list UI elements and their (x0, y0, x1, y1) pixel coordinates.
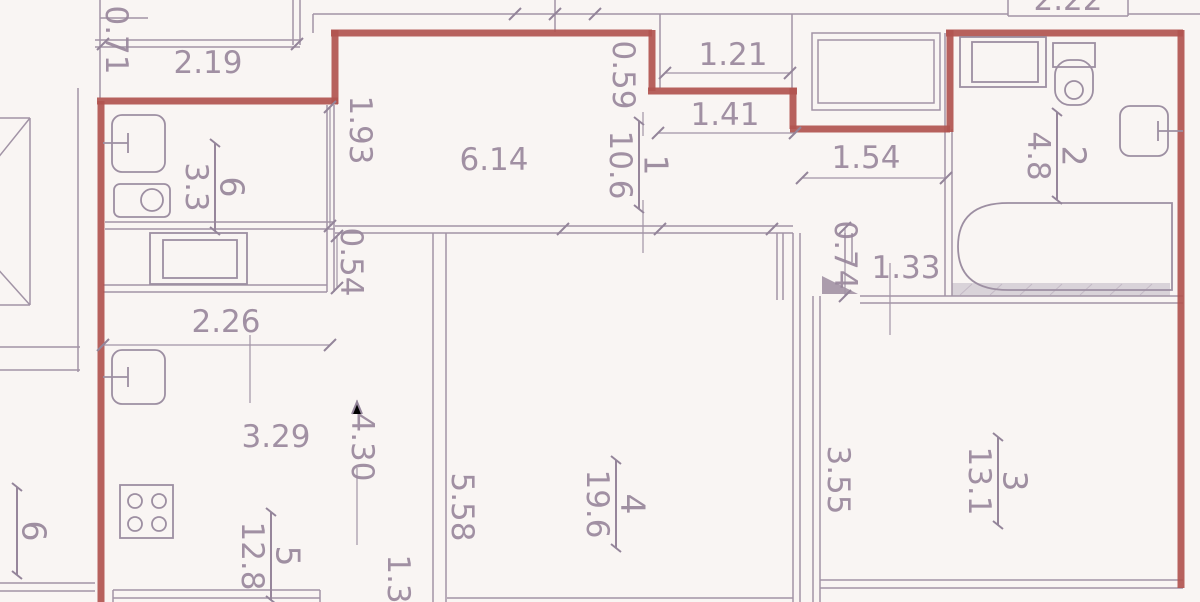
room-label-6: 6 (12, 483, 54, 579)
kitchen-sink-icon (103, 350, 165, 404)
room-number: 3 (996, 471, 1035, 492)
room-label-4: 419.6 (579, 456, 653, 552)
svg-text:5.58: 5.58 (444, 472, 480, 541)
svg-text:2.26: 2.26 (191, 304, 260, 340)
neighbor-bottom-window (0, 583, 95, 591)
svg-text:0.59: 0.59 (605, 40, 641, 109)
bathtub-icon (958, 203, 1172, 290)
room-area: 19.6 (579, 469, 615, 538)
dimension-label: 3.55 (820, 445, 856, 514)
dimension-label: 6.14 (459, 142, 528, 178)
room-area: 3.3 (178, 162, 214, 211)
bathroom2-sink-icon (1120, 106, 1183, 156)
room-number: 4 (614, 494, 653, 515)
hall-stub-wall (777, 233, 783, 300)
dimension-label: 5.58 (444, 472, 480, 541)
kitchen-window (113, 590, 320, 602)
dimension-label: 0.71 (98, 5, 134, 74)
dimension-label: 3.29 (241, 419, 310, 455)
svg-text:3.55: 3.55 (820, 445, 856, 514)
room3-left-wall (813, 296, 820, 602)
bathroom6-toilet-icon (114, 184, 170, 217)
svg-text:2.22: 2.22 (1033, 0, 1102, 18)
room-number: 6 (213, 177, 252, 198)
labels-layer: 0.712.191.936.140.591.211.412.221.540.54… (12, 0, 1103, 602)
bath6-bottom-wall (105, 222, 335, 229)
room-area: 10.6 (602, 130, 638, 199)
dim-line-2-26 (103, 335, 330, 403)
dimension-label: 1.41 (690, 97, 759, 133)
bathroom6-sink-icon (103, 115, 165, 172)
room-label-3: 313.1 (961, 433, 1035, 529)
room-label-5: 512.8 (234, 508, 308, 602)
floor-plan-image: 0.712.191.936.140.591.211.412.221.540.54… (0, 0, 1200, 602)
bathroom2-toilet-icon (1053, 43, 1095, 105)
balcony-box-outer (812, 33, 940, 110)
room-label-2: 24.8 (1020, 108, 1094, 204)
dimension-label: 2.22 (1033, 0, 1102, 18)
svg-text:1.21: 1.21 (698, 37, 767, 73)
svg-text:1.33: 1.33 (871, 250, 940, 286)
svg-text:2.19: 2.19 (173, 45, 242, 81)
svg-text:0.54: 0.54 (333, 227, 369, 296)
dimension-label: 2.26 (191, 304, 260, 340)
dimension-label: 1.93 (342, 95, 378, 164)
svg-text:4.30: 4.30 (344, 412, 380, 481)
svg-text:1.41: 1.41 (690, 97, 759, 133)
dimension-label: 0.74 (827, 220, 863, 289)
room-number: 5 (269, 546, 308, 567)
room-area: 13.1 (961, 446, 997, 515)
room4-right-wall (793, 233, 800, 602)
dimension-label: 0.59 (605, 40, 641, 109)
dimension-label: 1.3 (380, 554, 416, 602)
room3-top-wall (860, 296, 1183, 303)
dimension-label: 2.19 (173, 45, 242, 81)
neighbor-mid-left-wall (0, 345, 80, 372)
balcony-box-inner (818, 40, 934, 103)
floor-plan-canvas: 0.712.191.936.140.591.211.412.221.540.54… (0, 0, 1200, 602)
svg-text:6.14: 6.14 (459, 142, 528, 178)
room-number: 1 (637, 155, 676, 176)
room-number: 6 (15, 521, 54, 542)
svg-text:0.71: 0.71 (98, 5, 134, 74)
niche-bottom-wall (103, 285, 327, 292)
room-area: 12.8 (234, 521, 270, 590)
shaft-x-box (0, 118, 30, 305)
room3-bottom-wall (820, 580, 1183, 588)
dimension-label: 1.54 (831, 140, 900, 176)
svg-text:1.93: 1.93 (342, 95, 378, 164)
dimension-label: 1.21 (698, 37, 767, 73)
svg-text:3.29: 3.29 (241, 419, 310, 455)
room-area: 4.8 (1020, 131, 1056, 180)
dimension-label: 1.33 (871, 250, 940, 286)
room-label-6: 63.3 (178, 139, 252, 235)
room-label-1: 110.6 (602, 117, 676, 213)
svg-text:1.3: 1.3 (380, 554, 416, 602)
room-number: 2 (1055, 146, 1094, 167)
svg-text:0.74: 0.74 (827, 220, 863, 289)
kitchen-room4-wall (433, 233, 446, 602)
washing-machine-icon (150, 233, 247, 284)
dimension-label: 0.54 (333, 227, 369, 296)
stove-icon (120, 485, 173, 538)
svg-text:1.54: 1.54 (831, 140, 900, 176)
dimension-label: 4.30 (344, 412, 380, 481)
bathroom2-washing-machine-icon (960, 37, 1046, 87)
